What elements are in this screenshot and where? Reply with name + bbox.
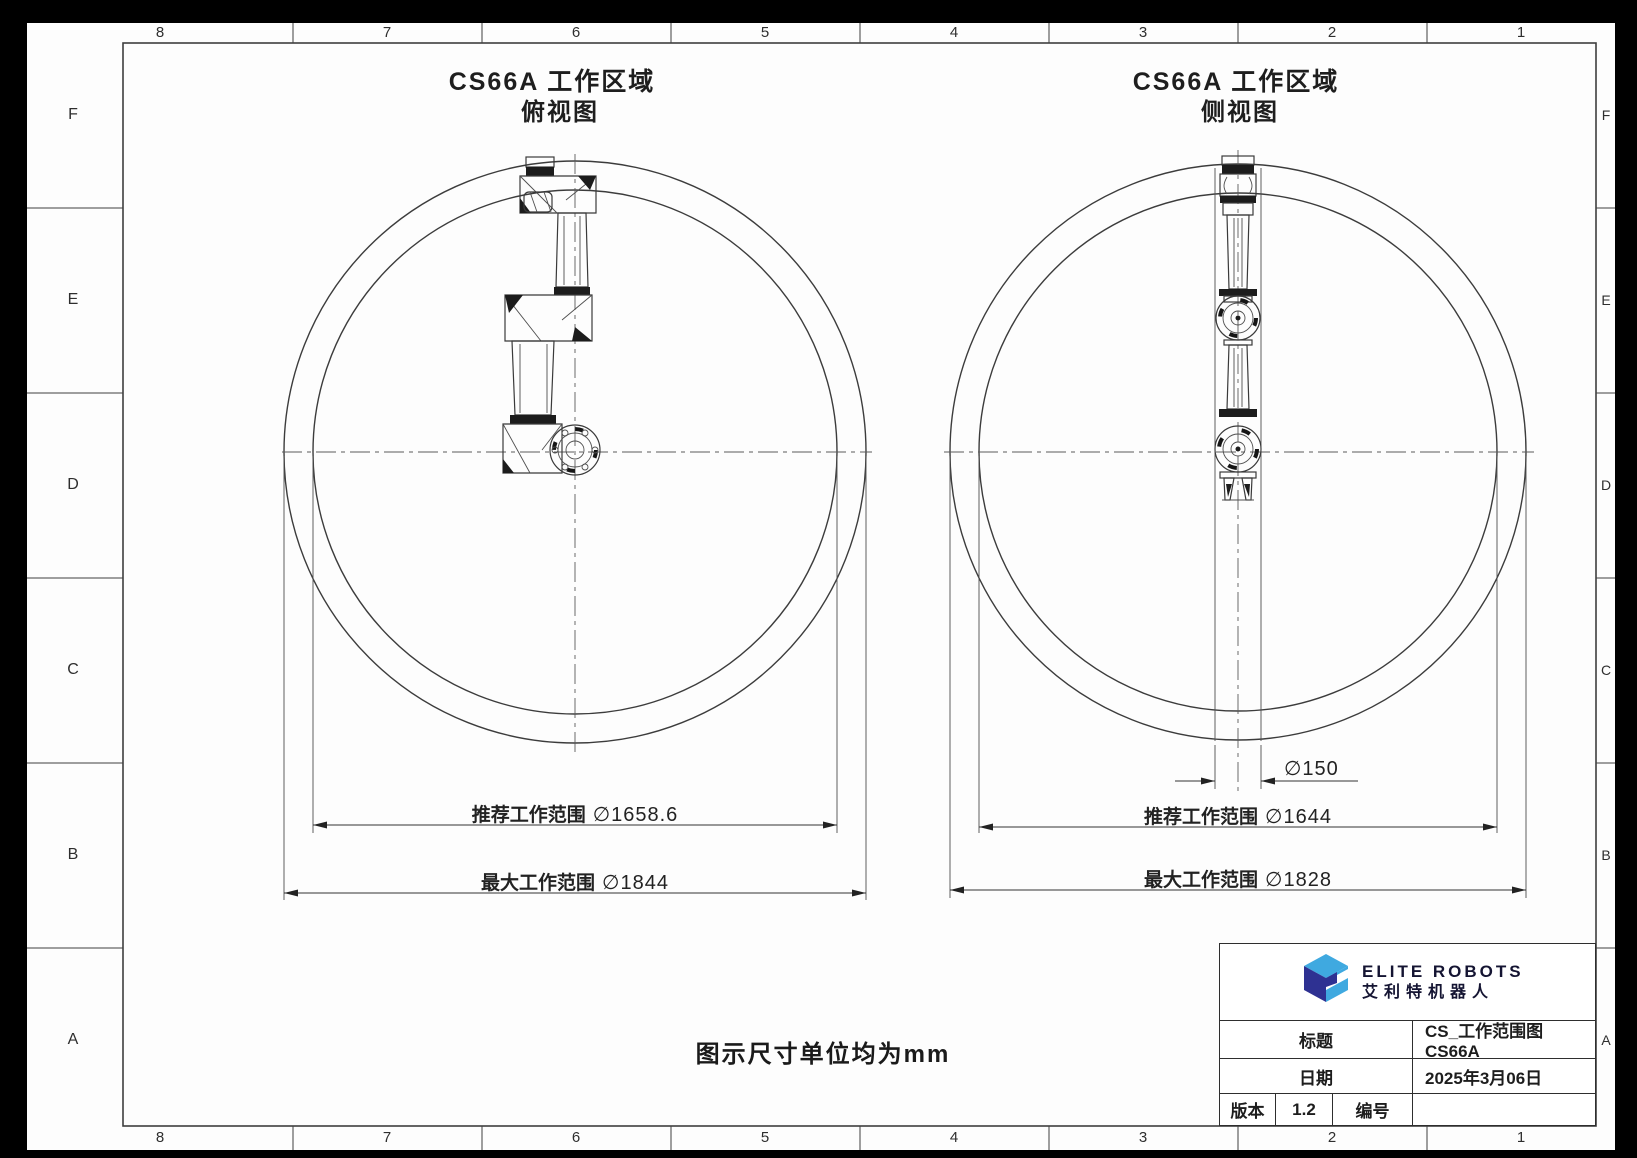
grid-col-bottom-6: 6	[572, 1129, 580, 1146]
grid-row-right-e: E	[1601, 292, 1610, 308]
grid-row-right-d: D	[1601, 477, 1611, 493]
grid-row-left-f: F	[68, 106, 78, 124]
elite-robots-logo-icon	[1304, 954, 1348, 1010]
side-view-subtitle: 侧视图	[1201, 92, 1279, 127]
grid-col-bottom-8: 8	[156, 1129, 164, 1146]
number-value-cell	[1413, 1094, 1595, 1125]
grid-col-bottom-5: 5	[761, 1129, 769, 1146]
side-view-max-dimension: 最大工作范围∅1828	[1144, 865, 1332, 892]
title-row: 标题 CS_工作范围图 CS66A	[1220, 1021, 1595, 1059]
recommended-range-label: 推荐工作范围	[1144, 807, 1258, 828]
grid-col-top-8: 8	[156, 24, 164, 41]
grid-col-bottom-7: 7	[383, 1129, 391, 1146]
brand-text: ELITE ROBOTS 艾利特机器人	[1362, 961, 1524, 1002]
top-view-centerlines	[282, 154, 872, 752]
recommended-range-value: ∅1658.6	[593, 804, 679, 826]
grid-col-bottom-1: 1	[1517, 1129, 1525, 1146]
units-note: 图示尺寸单位均为mm	[696, 1034, 951, 1069]
top-view-recommended-dimension: 推荐工作范围∅1658.6	[472, 800, 679, 827]
right-band-dividers	[1596, 208, 1615, 948]
max-range-value: ∅1844	[602, 872, 669, 894]
grid-row-left-c: C	[67, 661, 79, 679]
bottom-band-dividers	[293, 1126, 1427, 1150]
grid-col-bottom-3: 3	[1139, 1129, 1147, 1146]
max-range-label: 最大工作范围	[481, 873, 595, 894]
recommended-range-label: 推荐工作范围	[472, 805, 586, 826]
number-label-cell: 编号	[1333, 1094, 1413, 1125]
side-view-column-diameter: ∅150	[1284, 756, 1339, 781]
brand-name-en: ELITE ROBOTS	[1362, 961, 1524, 982]
grid-row-left-d: D	[67, 476, 79, 494]
top-view-max-dimension: 最大工作范围∅1844	[481, 868, 669, 895]
grid-row-right-f: F	[1602, 107, 1611, 123]
grid-row-right-c: C	[1601, 662, 1611, 678]
title-block: ELITE ROBOTS 艾利特机器人 标题 CS_工作范围图 CS66A 日期…	[1219, 943, 1596, 1126]
grid-col-top-3: 3	[1139, 24, 1147, 41]
max-range-value: ∅1828	[1265, 869, 1332, 891]
grid-col-bottom-2: 2	[1328, 1129, 1336, 1146]
grid-col-top-1: 1	[1517, 24, 1525, 41]
date-label-cell: 日期	[1220, 1059, 1413, 1093]
title-value-cell: CS_工作范围图 CS66A	[1413, 1021, 1595, 1058]
top-band-dividers	[293, 23, 1427, 43]
side-view-recommended-dimension: 推荐工作范围∅1644	[1144, 802, 1332, 829]
grid-col-top-2: 2	[1328, 24, 1336, 41]
grid-row-right-a: A	[1601, 1032, 1610, 1048]
brand-name-cn: 艾利特机器人	[1362, 983, 1524, 1003]
grid-row-left-a: A	[68, 1031, 79, 1049]
grid-row-left-e: E	[68, 291, 79, 309]
title-label-cell: 标题	[1220, 1021, 1413, 1058]
grid-col-top-6: 6	[572, 24, 580, 41]
grid-row-right-b: B	[1601, 847, 1610, 863]
max-range-label: 最大工作范围	[1144, 870, 1258, 891]
version-label-cell: 版本	[1220, 1094, 1276, 1125]
date-value-cell: 2025年3月06日	[1413, 1059, 1595, 1093]
grid-col-top-5: 5	[761, 24, 769, 41]
version-value-cell: 1.2	[1276, 1094, 1333, 1125]
top-view-subtitle: 俯视图	[521, 92, 599, 127]
top-view-robot	[503, 157, 600, 475]
recommended-range-value: ∅1644	[1265, 806, 1332, 828]
grid-col-top-7: 7	[383, 24, 391, 41]
version-row: 版本 1.2 编号	[1220, 1094, 1595, 1125]
title-block-logo-row: ELITE ROBOTS 艾利特机器人	[1220, 944, 1595, 1021]
left-band-dividers	[27, 208, 123, 948]
date-row: 日期 2025年3月06日	[1220, 1059, 1595, 1094]
grid-row-left-b: B	[68, 846, 79, 864]
drawing-page: 8 7 6 5 4 3 2 1 8 7 6 5 4 3 2 1 F E D C …	[0, 0, 1637, 1158]
grid-col-bottom-4: 4	[950, 1129, 958, 1146]
grid-col-top-4: 4	[950, 24, 958, 41]
